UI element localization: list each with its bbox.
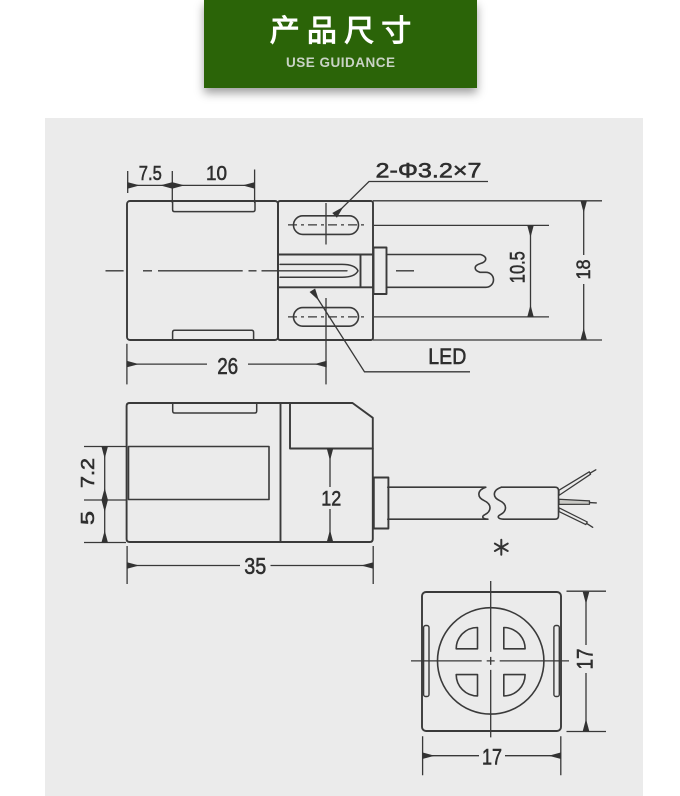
svg-text:17: 17	[573, 649, 598, 670]
svg-text:5: 5	[78, 511, 98, 525]
svg-text:10.5: 10.5	[507, 251, 530, 283]
svg-text:7.5: 7.5	[139, 163, 162, 185]
svg-text:LED: LED	[428, 344, 466, 369]
svg-text:2-Φ3.2×7: 2-Φ3.2×7	[376, 160, 482, 183]
svg-text:35: 35	[244, 553, 266, 579]
svg-text:7.2: 7.2	[78, 458, 98, 488]
svg-text:18: 18	[573, 260, 595, 280]
svg-text:17: 17	[482, 745, 502, 770]
svg-text:12: 12	[321, 488, 341, 511]
svg-text:26: 26	[217, 353, 238, 379]
svg-text:10: 10	[206, 163, 227, 185]
